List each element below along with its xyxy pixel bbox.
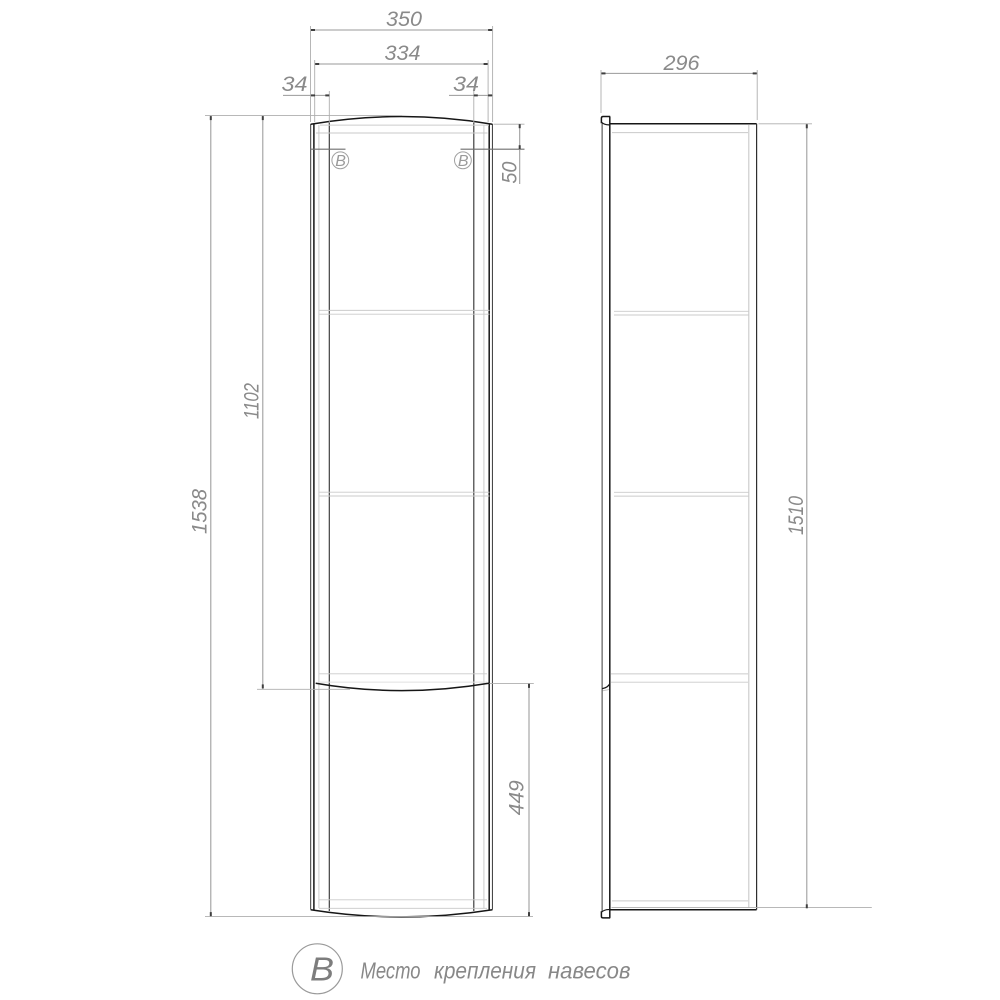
svg-text:50: 50 xyxy=(499,161,522,183)
svg-text:В: В xyxy=(458,153,469,170)
svg-text:В: В xyxy=(335,153,346,170)
svg-text:296: 296 xyxy=(662,52,699,75)
svg-text:34: 34 xyxy=(453,73,479,96)
svg-text:449: 449 xyxy=(506,780,529,815)
svg-text:1538: 1538 xyxy=(189,489,212,534)
svg-text:1510: 1510 xyxy=(785,496,808,535)
svg-text:В: В xyxy=(310,951,334,988)
svg-text:334: 334 xyxy=(385,42,421,65)
svg-text:34: 34 xyxy=(282,73,308,96)
svg-text:350: 350 xyxy=(386,8,422,31)
svg-text:навесов: навесов xyxy=(548,958,631,984)
svg-text:1102: 1102 xyxy=(241,383,264,419)
svg-text:крепления: крепления xyxy=(434,958,536,984)
svg-text:Место: Место xyxy=(361,958,421,984)
